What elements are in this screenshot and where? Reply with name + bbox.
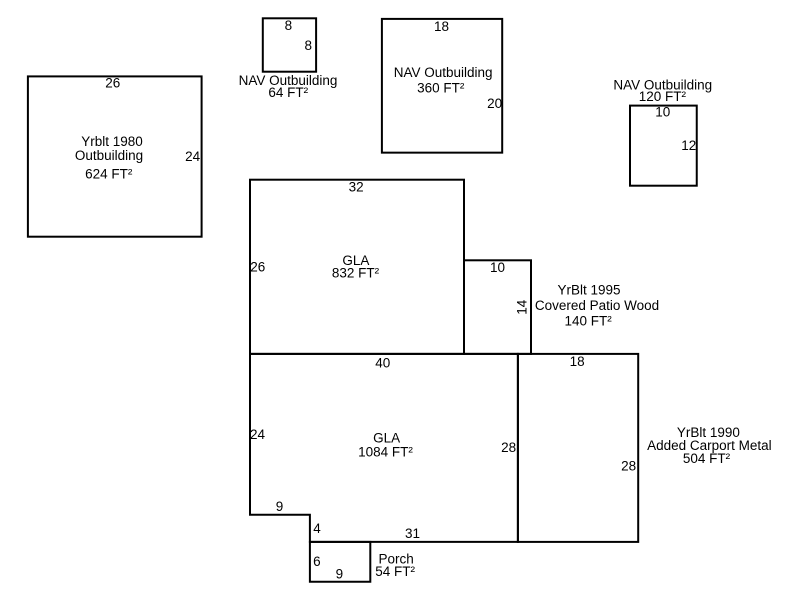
svg-text:31: 31 [405, 526, 420, 541]
svg-text:8: 8 [285, 18, 293, 33]
svg-text:140 FT²: 140 FT² [565, 314, 613, 329]
svg-text:40: 40 [375, 355, 390, 370]
svg-text:54 FT²: 54 FT² [375, 564, 415, 579]
svg-text:YrBlt 1995: YrBlt 1995 [557, 283, 620, 298]
svg-text:Outbuilding: Outbuilding [75, 148, 143, 163]
svg-text:Covered Patio Wood: Covered Patio Wood [535, 298, 659, 313]
svg-text:360 FT²: 360 FT² [417, 80, 465, 95]
svg-text:18: 18 [570, 354, 585, 369]
svg-text:24: 24 [185, 149, 201, 164]
svg-text:120 FT²: 120 FT² [639, 89, 687, 104]
svg-text:504 FT²: 504 FT² [683, 451, 731, 466]
svg-text:832 FT²: 832 FT² [332, 266, 380, 281]
svg-text:26: 26 [250, 259, 265, 274]
svg-text:28: 28 [621, 459, 636, 474]
svg-text:28: 28 [501, 440, 516, 455]
svg-text:18: 18 [434, 19, 449, 34]
svg-text:9: 9 [336, 567, 344, 582]
svg-text:14: 14 [515, 299, 530, 315]
svg-text:4: 4 [313, 521, 321, 536]
svg-text:32: 32 [349, 180, 364, 195]
svg-text:624 FT²: 624 FT² [85, 166, 133, 181]
svg-text:12: 12 [681, 138, 696, 153]
svg-text:NAV Outbuilding: NAV Outbuilding [394, 65, 493, 80]
svg-text:Yrblt 1980: Yrblt 1980 [81, 134, 143, 149]
svg-text:GLA: GLA [373, 431, 400, 446]
svg-text:24: 24 [250, 427, 266, 442]
svg-text:10: 10 [490, 260, 505, 275]
svg-text:10: 10 [655, 105, 670, 120]
svg-text:26: 26 [105, 76, 120, 91]
svg-text:1084 FT²: 1084 FT² [358, 444, 413, 459]
svg-text:9: 9 [276, 499, 284, 514]
svg-text:20: 20 [487, 96, 502, 111]
svg-text:64 FT²: 64 FT² [268, 85, 308, 100]
svg-text:6: 6 [313, 554, 321, 569]
svg-text:8: 8 [304, 38, 312, 53]
